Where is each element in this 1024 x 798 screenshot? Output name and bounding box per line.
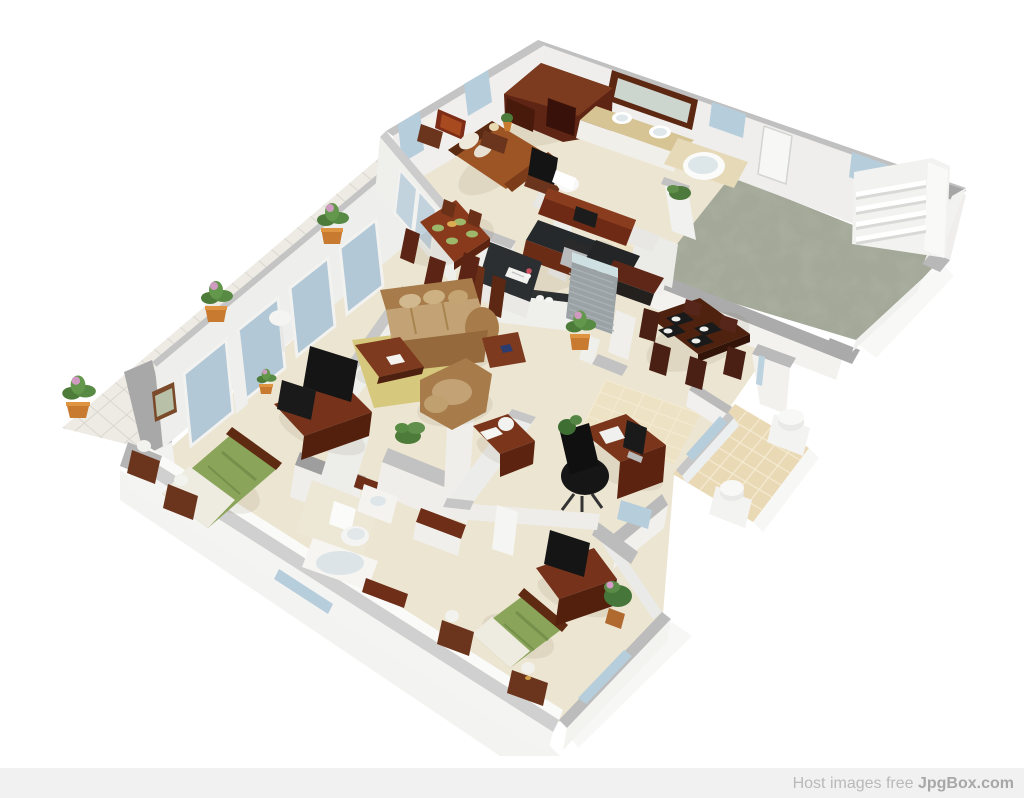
svg-text:Host images free JpgBox.com: Host images free JpgBox.com [793, 775, 1014, 792]
